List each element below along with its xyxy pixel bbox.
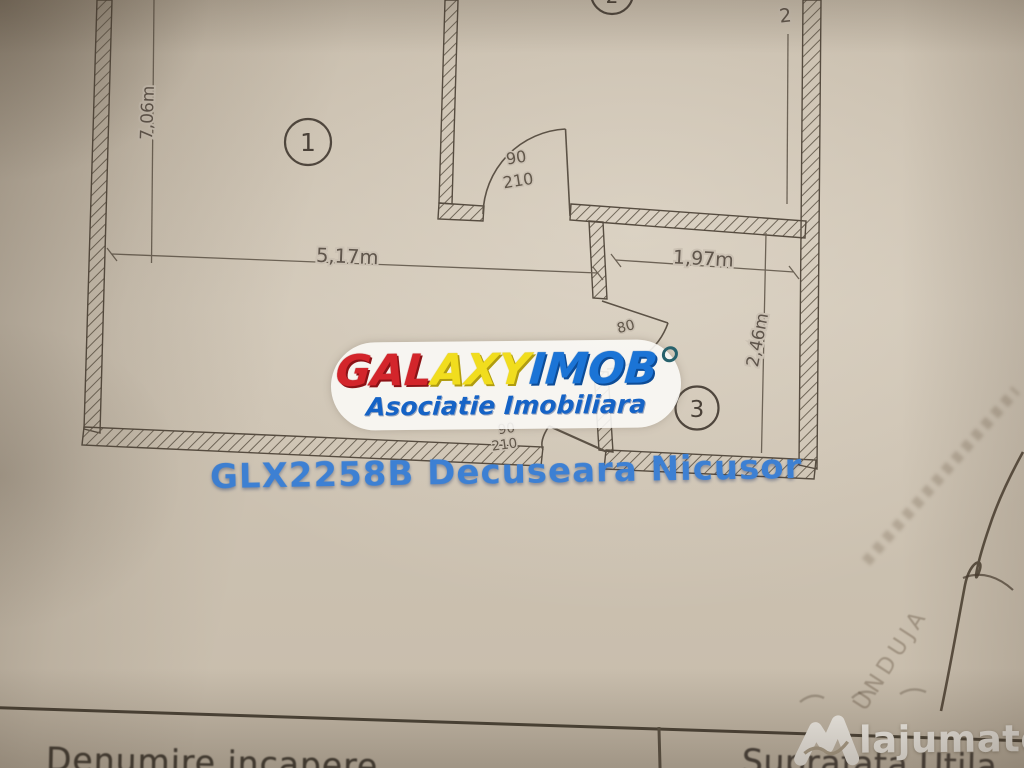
mountain-icon: [793, 715, 859, 768]
brand-part-yellow: AXY: [430, 345, 531, 396]
brand-logo: GALAXYIMOB: [334, 348, 678, 392]
site-logo: lajumate.ro: [793, 713, 1024, 768]
stamp-text: UNDUJA: [849, 604, 934, 716]
brand-part-red: GAL: [334, 346, 434, 397]
watermark-pill: GALAXYIMOB Asociatie Imobiliara: [331, 339, 682, 431]
floor-plan-photo: 7,06m 5,17m 1,97m 2,46m 2 90 210 80 90 2…: [0, 0, 1024, 768]
stamp-upper-line: [866, 390, 1016, 562]
registered-mark-icon: [661, 346, 678, 362]
pen-stroke: [941, 452, 1023, 711]
brand-subtitle: Asociatie Imobiliara: [365, 390, 647, 422]
site-logo-text: lajumate: [859, 714, 1024, 766]
brand-part-blue: IMOB: [527, 343, 659, 394]
pen-stroke-branch: [963, 575, 1013, 590]
